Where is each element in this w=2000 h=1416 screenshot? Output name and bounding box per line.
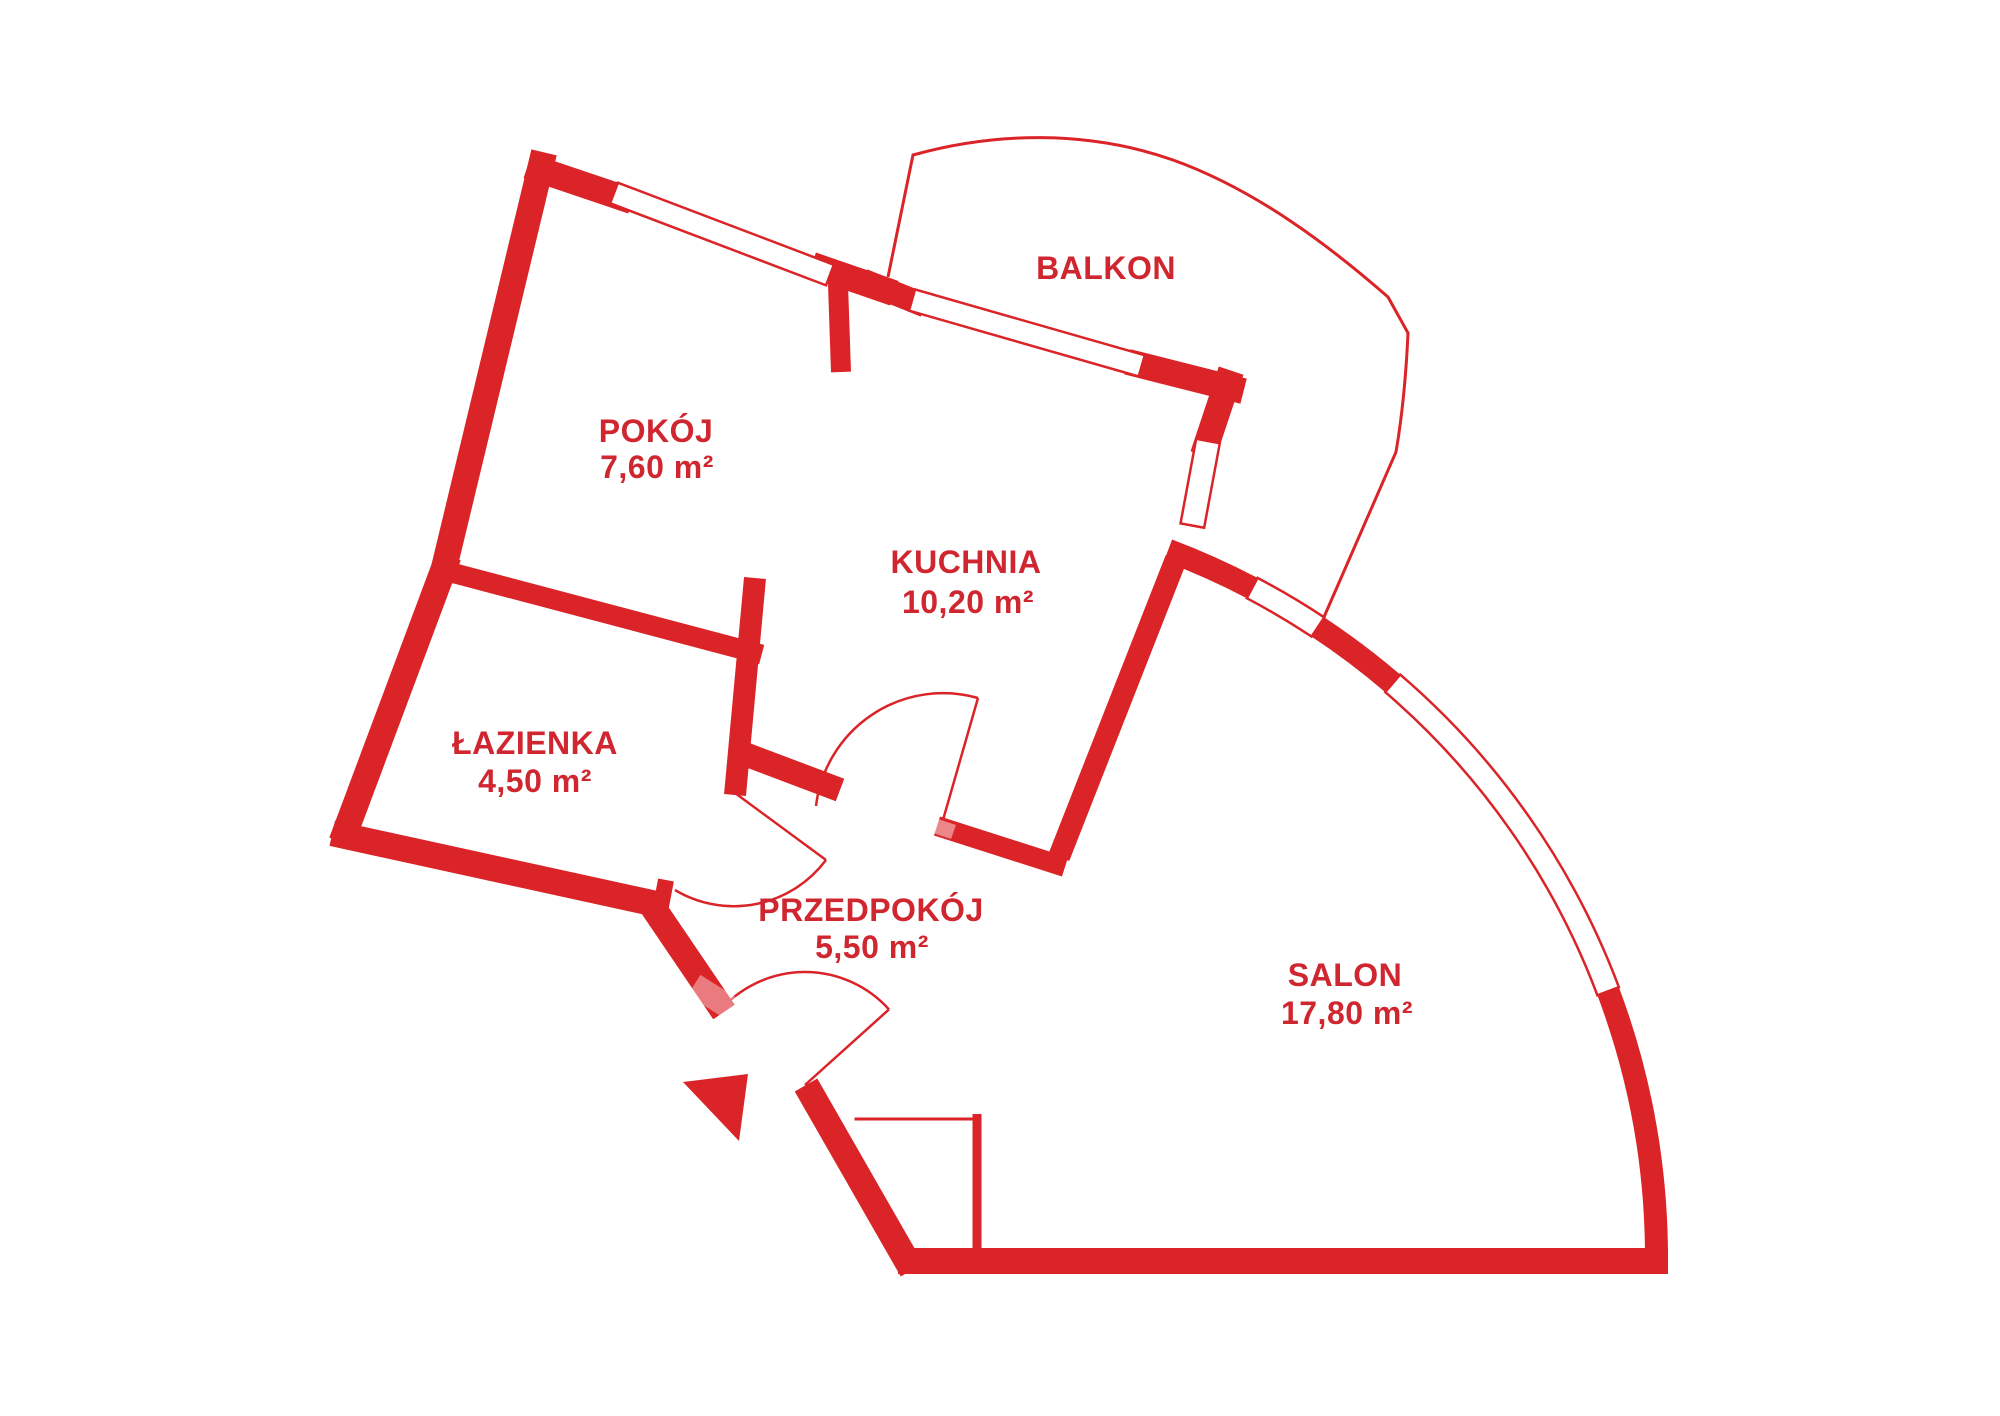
- wall-kuchnia-bottom: [734, 750, 840, 790]
- label-kuchnia: KUCHNIA: [890, 544, 1041, 580]
- bathroom-door-leaf: [735, 793, 826, 860]
- wall-lazienka-bottom: [345, 836, 652, 903]
- wall-lazienka-top: [442, 570, 752, 652]
- floor-plan: BALKON POKÓJ 7,60 m² KUCHNIA 10,20 m² ŁA…: [0, 0, 2000, 1416]
- floor-plan-canvas: BALKON POKÓJ 7,60 m² KUCHNIA 10,20 m² ŁA…: [0, 0, 2000, 1416]
- area-salon: 17,80 m²: [1281, 995, 1413, 1031]
- entrance-door: [720, 972, 889, 1085]
- label-balkon: BALKON: [1036, 250, 1176, 286]
- curved-window-2: [1385, 675, 1619, 996]
- wall-entry-lower: [806, 1085, 912, 1270]
- label-pokoj: POKÓJ: [599, 413, 714, 449]
- window-pokoj: [610, 183, 834, 286]
- entrance-door-leaf: [805, 1009, 889, 1085]
- wall-salon-stub: [937, 826, 1065, 867]
- wall-kuchnia-salon: [1059, 559, 1176, 857]
- entrance-arrow-icon: [683, 1074, 748, 1141]
- doors: [675, 693, 978, 1085]
- area-przedpokoj: 5,50 m²: [815, 929, 929, 965]
- wall-left-lower: [346, 568, 444, 830]
- area-pokoj: 7,60 m²: [600, 449, 714, 485]
- bathroom-door: [675, 793, 826, 906]
- entrance-door-highlight: [694, 985, 743, 1016]
- area-lazienka: 4,50 m²: [478, 763, 592, 799]
- kitchen-door-leaf: [943, 698, 978, 820]
- label-przedpokoj: PRZEDPOKÓJ: [758, 892, 983, 928]
- kitchen-door: [816, 693, 978, 820]
- label-lazienka: ŁAZIENKA: [452, 725, 618, 761]
- window-kuchnia: [909, 289, 1145, 376]
- wall-kuchnia-top: [874, 285, 914, 301]
- wall-left-upper: [444, 165, 541, 568]
- area-kuchnia: 10,20 m²: [902, 584, 1034, 620]
- wall-salon-bottom: [898, 1248, 1668, 1274]
- window-balkon-door: [1181, 439, 1220, 528]
- curved-window-1: [1247, 578, 1325, 637]
- room-labels: BALKON POKÓJ 7,60 m² KUCHNIA 10,20 m² ŁA…: [452, 250, 1413, 1031]
- label-salon: SALON: [1288, 957, 1403, 993]
- curved-wall-segment-3: [1597, 987, 1668, 1273]
- wall-pokoj-kuchnia-stem: [838, 284, 841, 372]
- salon-curved-wall: [1164, 540, 1668, 1274]
- curved-wall-segment-2: [1312, 617, 1401, 692]
